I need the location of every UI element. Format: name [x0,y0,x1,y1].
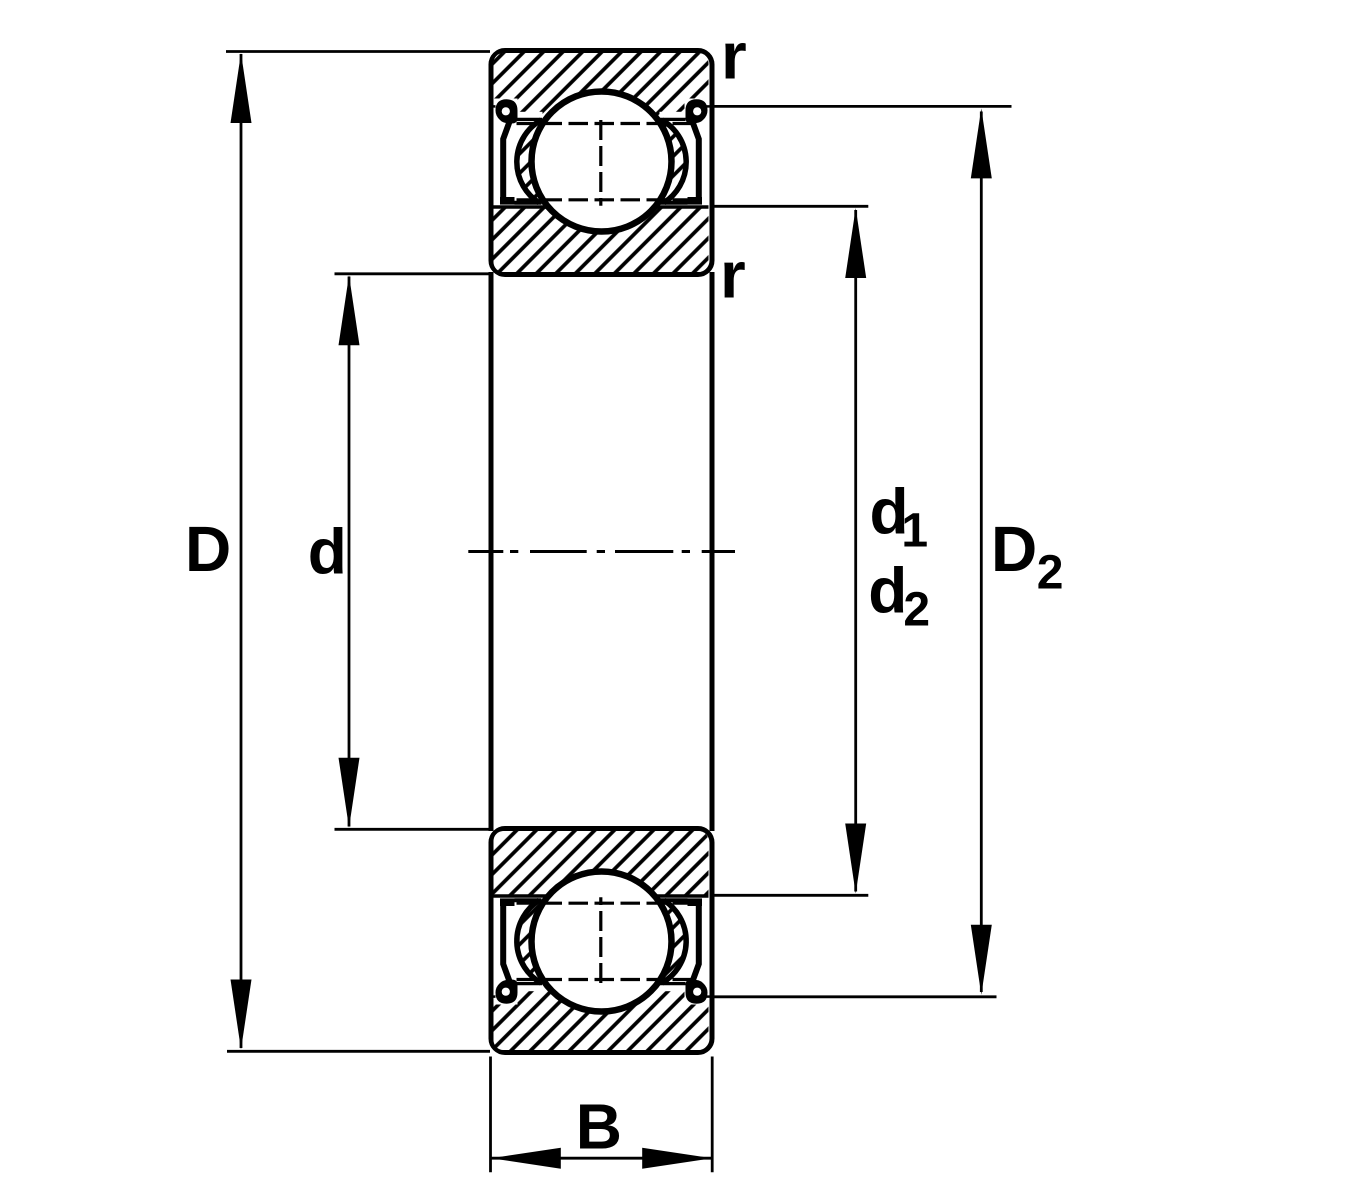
svg-text:r: r [720,238,746,312]
svg-text:1: 1 [901,505,928,558]
svg-text:r: r [721,19,747,93]
svg-text:D: D [991,513,1037,585]
svg-text:d: d [308,516,347,588]
svg-text:B: B [576,1091,622,1163]
svg-text:2: 2 [1037,547,1064,600]
svg-text:d: d [868,555,907,627]
svg-text:D: D [185,513,231,585]
svg-text:2: 2 [903,584,930,637]
